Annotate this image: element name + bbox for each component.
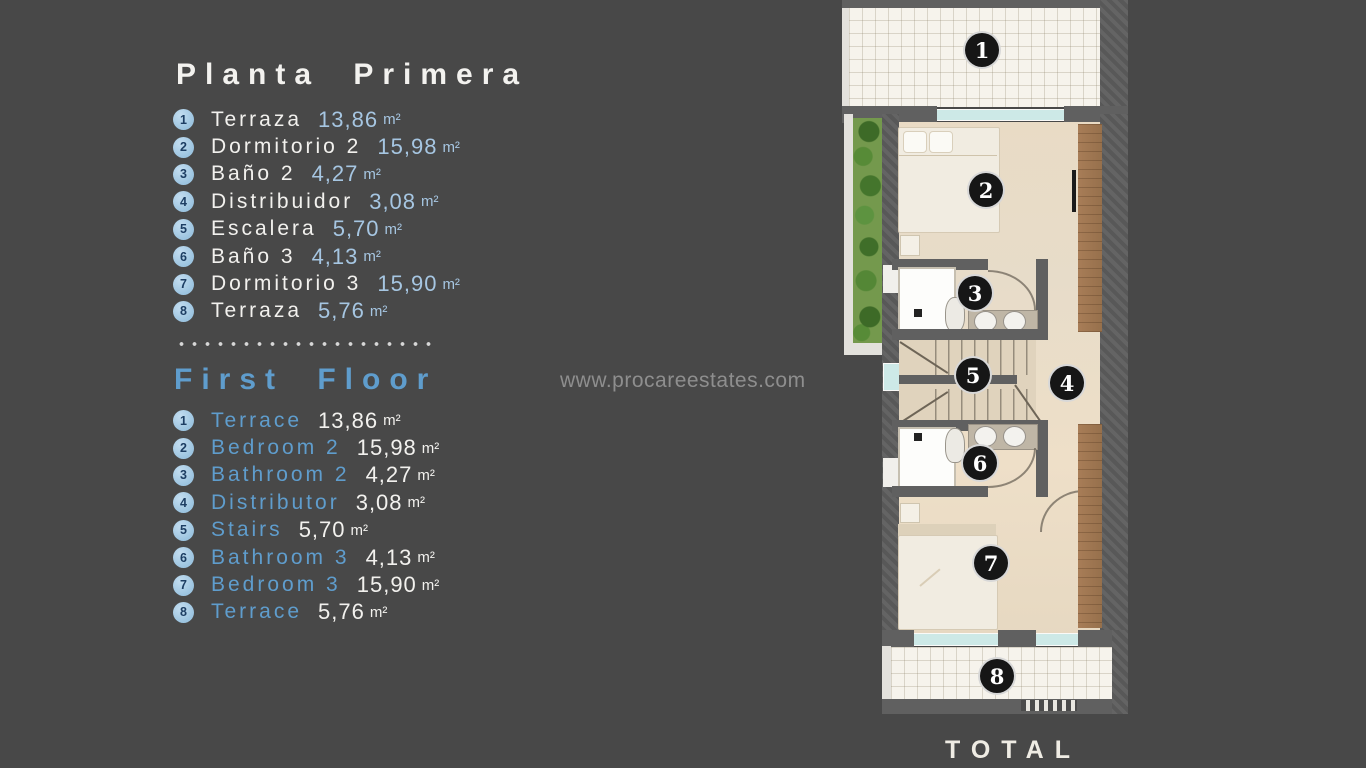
- area-unit: m²: [408, 494, 426, 511]
- plan-marker-4: 4: [1048, 364, 1086, 402]
- room-number-badge: 8: [173, 602, 194, 623]
- room-name: Escalera: [211, 217, 317, 241]
- plan-marker-6: 6: [961, 444, 999, 482]
- room-number-badge: 1: [173, 109, 194, 130]
- plan-marker-5: 5: [954, 356, 992, 394]
- room-area: 4,27: [366, 462, 413, 488]
- room-number-badge: 3: [173, 465, 194, 486]
- list-item: 1 Terrace 13,86 m²: [173, 407, 439, 434]
- window: [883, 458, 898, 487]
- list-item: 3 Bathroom 2 4,27 m²: [173, 462, 439, 489]
- area-unit: m²: [422, 440, 440, 457]
- room-area: 3,08: [369, 189, 416, 215]
- room-name: Bathroom 2: [211, 463, 350, 487]
- room-number-badge: 6: [173, 547, 194, 568]
- room-name: Baño 3: [211, 245, 296, 269]
- room-number-badge: 5: [173, 219, 194, 240]
- window: [883, 363, 900, 391]
- list-item: 1 Terraza 13,86 m²: [173, 106, 460, 133]
- room-name: Stairs: [211, 518, 283, 542]
- area-unit: m²: [363, 166, 381, 183]
- garden-edge: [844, 114, 853, 346]
- window: [937, 109, 1064, 121]
- room-number-badge: 6: [173, 246, 194, 267]
- plan-marker-8: 8: [978, 657, 1016, 695]
- area-unit: m²: [383, 111, 401, 128]
- room-name: Bedroom 2: [211, 436, 341, 460]
- room-name: Distributor: [211, 491, 340, 515]
- sink-icon: [1003, 426, 1026, 447]
- room-area: 13,86: [318, 107, 378, 133]
- spanish-title: Planta Primera: [176, 58, 528, 92]
- room-name: Terraza: [211, 108, 302, 132]
- floor-plan: 1 2 3 4 5 6 7 8 TOTAL: [840, 0, 1140, 768]
- room-area: 15,90: [357, 572, 417, 598]
- list-item: 6 Baño 3 4,13 m²: [173, 243, 460, 270]
- area-unit: m²: [417, 549, 435, 566]
- floorplan-slide: Planta Primera 1 Terraza 13,86 m² 2 Dorm…: [0, 0, 1366, 768]
- dotted-separator: [175, 341, 439, 347]
- room-number-badge: 4: [173, 492, 194, 513]
- plan-marker-3: 3: [956, 274, 994, 312]
- window: [1036, 633, 1078, 646]
- room-name: Baño 2: [211, 162, 296, 186]
- room-number-badge: 2: [173, 137, 194, 158]
- bed-fold-line: [899, 155, 997, 156]
- pillow-icon: [929, 131, 953, 153]
- area-unit: m²: [370, 604, 388, 621]
- room-area: 4,13: [366, 545, 413, 571]
- plan-marker-2: 2: [967, 171, 1005, 209]
- room-area: 5,76: [318, 298, 365, 324]
- garden-plants: [853, 118, 882, 344]
- list-item: 7 Dormitorio 3 15,90 m²: [173, 270, 460, 297]
- room-area: 15,90: [377, 271, 437, 297]
- wardrobe-icon: [1078, 424, 1102, 628]
- room-number-badge: 3: [173, 164, 194, 185]
- room-area: 5,70: [299, 517, 346, 543]
- list-item: 6 Bathroom 3 4,13 m²: [173, 544, 439, 571]
- room-number-badge: 1: [173, 410, 194, 431]
- area-unit: m²: [370, 303, 388, 320]
- total-label: TOTAL: [945, 736, 1081, 765]
- door-leaf: [1072, 170, 1076, 212]
- english-room-list: 1 Terrace 13,86 m² 2 Bedroom 2 15,98 m² …: [173, 407, 439, 626]
- plan-marker-7: 7: [972, 544, 1010, 582]
- list-item: 8 Terraza 5,76 m²: [173, 298, 460, 325]
- spanish-room-list: 1 Terraza 13,86 m² 2 Dormitorio 2 15,98 …: [173, 106, 460, 325]
- english-title: First Floor: [174, 363, 437, 397]
- room-area: 13,86: [318, 408, 378, 434]
- list-item: 4 Distribuidor 3,08 m²: [173, 188, 460, 215]
- list-item: 4 Distributor 3,08 m²: [173, 489, 439, 516]
- area-unit: m²: [385, 221, 403, 238]
- area-unit: m²: [363, 248, 381, 265]
- room-area: 3,08: [356, 490, 403, 516]
- room-name: Distribuidor: [211, 190, 353, 214]
- wardrobe-icon: [1078, 124, 1102, 332]
- list-item: 5 Escalera 5,70 m²: [173, 216, 460, 243]
- room-area: 4,13: [312, 244, 359, 270]
- room-name: Bathroom 3: [211, 546, 350, 570]
- wall-segment: [1112, 630, 1128, 714]
- wall-segment: [842, 0, 1126, 8]
- room-number-badge: 4: [173, 191, 194, 212]
- shower-drain: [914, 433, 922, 441]
- area-unit: m²: [417, 467, 435, 484]
- room-number-badge: 7: [173, 274, 194, 295]
- room-area: 5,70: [333, 216, 380, 242]
- room-area: 4,27: [312, 161, 359, 187]
- area-unit: m²: [421, 193, 439, 210]
- window: [914, 633, 998, 646]
- wall-segment: [882, 699, 1128, 714]
- room-number-badge: 5: [173, 520, 194, 541]
- room-area: 15,98: [377, 134, 437, 160]
- vent-grille: [1021, 700, 1077, 711]
- shower-drain: [914, 309, 922, 317]
- room-area: 5,76: [318, 599, 365, 625]
- list-item: 8 Terrace 5,76 m²: [173, 599, 439, 626]
- area-unit: m²: [442, 139, 460, 156]
- area-unit: m²: [442, 276, 460, 293]
- nightstand-icon: [900, 503, 920, 523]
- area-unit: m²: [351, 522, 369, 539]
- website-watermark: www.procareestates.com: [560, 369, 806, 393]
- wall-segment: [892, 486, 988, 497]
- room-number-badge: 8: [173, 301, 194, 322]
- room-name: Dormitorio 2: [211, 135, 361, 159]
- nightstand-icon: [900, 235, 920, 256]
- room-name: Terrace: [211, 600, 302, 624]
- plan-marker-1: 1: [963, 31, 1001, 69]
- area-unit: m²: [383, 412, 401, 429]
- wall-segment: [1100, 114, 1128, 648]
- list-item: 2 Bedroom 2 15,98 m²: [173, 434, 439, 461]
- area-unit: m²: [422, 577, 440, 594]
- room-number-badge: 2: [173, 438, 194, 459]
- room-area: 15,98: [357, 435, 417, 461]
- pillow-icon: [903, 131, 927, 153]
- list-item: 3 Baño 2 4,27 m²: [173, 161, 460, 188]
- room-name: Terraza: [211, 299, 302, 323]
- wall-segment: [892, 329, 1048, 340]
- room-name: Terrace: [211, 409, 302, 433]
- room-number-badge: 7: [173, 575, 194, 596]
- wall-segment: [998, 630, 1036, 648]
- room-name: Dormitorio 3: [211, 272, 361, 296]
- garden-cap: [844, 343, 884, 355]
- list-item: 5 Stairs 5,70 m²: [173, 517, 439, 544]
- list-item: 2 Dormitorio 2 15,98 m²: [173, 133, 460, 160]
- list-item: 7 Bedroom 3 15,90 m²: [173, 571, 439, 598]
- room-name: Bedroom 3: [211, 573, 341, 597]
